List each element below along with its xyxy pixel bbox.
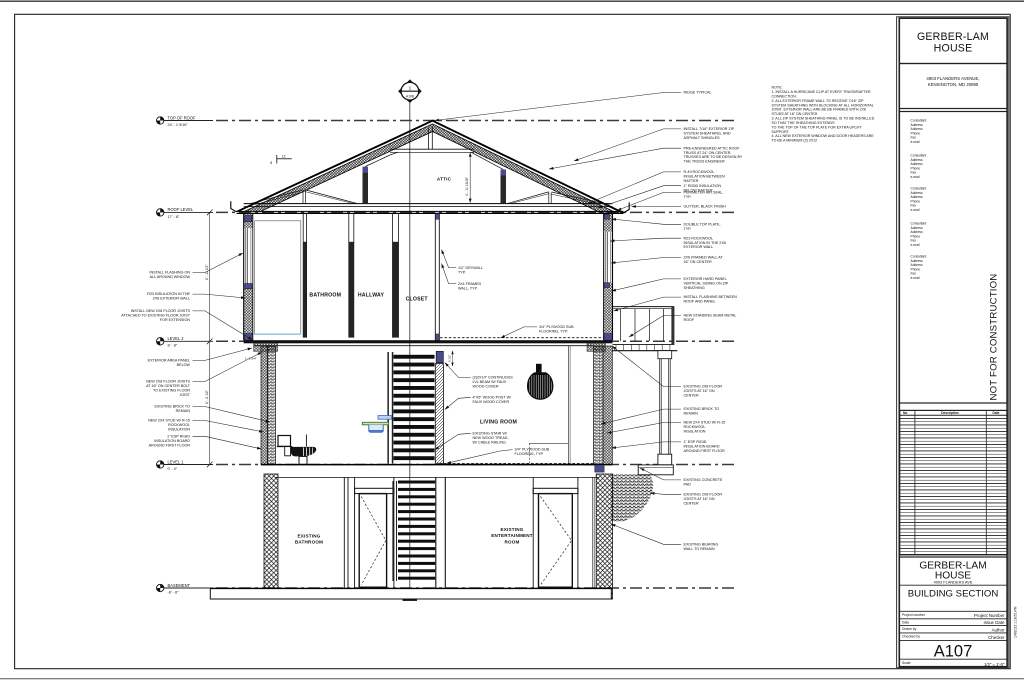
svg-text:1. INSTALL A HURRICANE CLIP AT: 1. INSTALL A HURRICANE CLIP AT EVERY TRU…	[772, 90, 871, 94]
svg-text:AT 16" ON CENTER BOLT: AT 16" ON CENTER BOLT	[146, 384, 191, 388]
svg-text:JOISTS AT 16" ON: JOISTS AT 16" ON	[684, 497, 715, 501]
svg-text:Scale: Scale	[902, 661, 911, 665]
svg-text:EXTERIOR HARD PANEL: EXTERIOR HARD PANEL	[684, 277, 727, 281]
svg-text:PERIMETER AIR SEAL,: PERIMETER AIR SEAL,	[684, 191, 724, 195]
svg-text:12: 12	[282, 155, 286, 159]
svg-text:EXISTING BRICK TO: EXISTING BRICK TO	[154, 405, 190, 409]
svg-text:A108: A108	[406, 95, 414, 99]
svg-text:ROOF LEVEL: ROOF LEVEL	[168, 207, 194, 212]
svg-text:4"X6" WOOD POST W/: 4"X6" WOOD POST W/	[473, 395, 513, 399]
svg-text:FOR EXTENSION: FOR EXTENSION	[160, 318, 190, 322]
svg-text:CENTER: CENTER	[684, 501, 699, 505]
svg-text:TYP.: TYP.	[684, 227, 692, 231]
svg-text:WALL TO REMAIN: WALL TO REMAIN	[684, 547, 715, 551]
svg-text:SO THAT THE SHEATHING EXTENDS: SO THAT THE SHEATHING EXTENDS	[772, 121, 836, 125]
svg-text:LIVING ROOM: LIVING ROOM	[480, 420, 517, 426]
svg-text:1/4/2022 1:18:51 PM: 1/4/2022 1:18:51 PM	[1014, 606, 1018, 638]
svg-text:e-mail: e-mail	[911, 208, 920, 212]
svg-text:STUDS AT 16" ON CENTER.: STUDS AT 16" ON CENTER.	[772, 112, 819, 116]
svg-text:TO EXISTING FLOOR: TO EXISTING FLOOR	[153, 389, 190, 393]
svg-text:ENTERTAINMENT: ENTERTAINMENT	[491, 533, 533, 538]
svg-text:W/ CABLE RAILING: W/ CABLE RAILING	[473, 440, 507, 444]
svg-text:Description: Description	[941, 411, 959, 415]
svg-text:AROUND FIRST FLOOR: AROUND FIRST FLOOR	[149, 443, 191, 447]
svg-text:ROOF: ROOF	[684, 318, 695, 322]
svg-text:AROUND FIRST FLOOR: AROUND FIRST FLOOR	[684, 449, 726, 453]
svg-text:ATTIC: ATTIC	[437, 177, 452, 182]
svg-text:WALL, TYP.: WALL, TYP.	[458, 286, 478, 290]
svg-text:R-49 ROCKWOOL: R-49 ROCKWOOL	[684, 170, 715, 174]
svg-text:CONNECTION.: CONNECTION.	[772, 94, 797, 98]
svg-text:TYP.: TYP.	[458, 270, 466, 274]
svg-text:CENTER: CENTER	[684, 394, 699, 398]
svg-text:Author: Author	[992, 627, 1005, 632]
svg-text:JOIST: JOIST	[180, 393, 191, 397]
svg-text:VERTICAL SIDING ON ZIP: VERTICAL SIDING ON ZIP	[684, 281, 729, 285]
svg-text:ALL AROUND WINDOW: ALL AROUND WINDOW	[150, 275, 191, 279]
svg-text:TO THE TOP OF THE TOP PLATE FO: TO THE TOP OF THE TOP PLATE FOR EXTRA UP…	[772, 125, 863, 129]
svg-text:EXISTING: EXISTING	[500, 527, 523, 532]
svg-text:KENSINGTON, MD 20895: KENSINGTON, MD 20895	[928, 82, 979, 87]
svg-text:PAD: PAD	[684, 482, 692, 486]
svg-text:ROOF AND PANEL: ROOF AND PANEL	[684, 300, 716, 304]
svg-text:JOISTS AT 16" ON: JOISTS AT 16" ON	[684, 389, 715, 393]
svg-text:NOT FOR CONSTRUCTION: NOT FOR CONSTRUCTION	[989, 274, 1000, 401]
svg-text:Checked by: Checked by	[902, 635, 920, 639]
svg-text:1/2" DRYWALL: 1/2" DRYWALL	[458, 266, 483, 270]
svg-text:Project Number: Project Number	[974, 613, 1005, 618]
svg-text:EXISTING 2X8 FLOOR: EXISTING 2X8 FLOOR	[684, 492, 723, 496]
svg-text:2X6 FRAMED WALL AT: 2X6 FRAMED WALL AT	[684, 256, 724, 260]
svg-text:INSULATION BOARD: INSULATION BOARD	[154, 439, 190, 443]
svg-text:INSULATION BETWEEN: INSULATION BETWEEN	[684, 174, 725, 178]
svg-text:INSTALL NEW 2X8 FLOOR JOISTS: INSTALL NEW 2X8 FLOOR JOISTS	[131, 309, 191, 313]
svg-text:HOUSE: HOUSE	[934, 43, 973, 55]
svg-text:REMAIN: REMAIN	[176, 409, 191, 413]
svg-text:EXISTING 2X8 FLOOR: EXISTING 2X8 FLOOR	[684, 385, 723, 389]
svg-text:BATHROOM: BATHROOM	[295, 540, 323, 545]
svg-text:Checker: Checker	[988, 635, 1005, 640]
svg-text:No.: No.	[903, 411, 908, 415]
svg-text:HALLWAY: HALLWAY	[358, 293, 385, 299]
svg-text:TRUSSES ARE TO BE DESIGN BY: TRUSSES ARE TO BE DESIGN BY	[684, 155, 743, 159]
svg-text:EXTERIOR WALL: EXTERIOR WALL	[684, 245, 714, 249]
svg-text:THE TRUSS ENGINEER: THE TRUSS ENGINEER	[684, 160, 725, 164]
svg-text:2X6 EXTERIOR WALL: 2X6 EXTERIOR WALL	[153, 297, 190, 301]
svg-text:3. ALL ZIP SYSTEM SHEATHING PA: 3. ALL ZIP SYSTEM SHEATHING PANEL IS TO …	[772, 117, 875, 121]
svg-text:TRUSS AT 24" ON CENTER.: TRUSS AT 24" ON CENTER.	[684, 151, 732, 155]
svg-text:INSULATION: INSULATION	[684, 430, 706, 434]
svg-text:ROCKWOOL: ROCKWOOL	[684, 425, 706, 429]
svg-text:INSULATION BOARD: INSULATION BOARD	[684, 444, 720, 448]
svg-text:FAUX WOOD COVER: FAUX WOOD COVER	[473, 400, 510, 404]
svg-text:R23 ROCKWOOL: R23 ROCKWOOL	[684, 236, 714, 240]
svg-text:R23 INSULATION IN THE: R23 INSULATION IN THE	[147, 292, 190, 296]
svg-text:INSTALL FLASHING BETWEEN: INSTALL FLASHING BETWEEN	[684, 295, 738, 299]
svg-text:RAFTER: RAFTER	[684, 179, 699, 183]
svg-text:RIDGE TYPICAL: RIDGE TYPICAL	[684, 91, 712, 95]
svg-text:1" ESP RIGID: 1" ESP RIGID	[167, 434, 190, 438]
svg-text:INSTALL 7/16" EXTERIOR ZIP: INSTALL 7/16" EXTERIOR ZIP	[684, 127, 735, 131]
svg-text:16" ON CENTER: 16" ON CENTER	[684, 260, 712, 264]
svg-text:DOUBLE TOP PLATE,: DOUBLE TOP PLATE,	[684, 222, 721, 226]
svg-text:8' - 8 1/2": 8' - 8 1/2"	[205, 389, 209, 404]
svg-text:GUTTER, BLACK FINISH: GUTTER, BLACK FINISH	[684, 205, 727, 209]
svg-text:ROCKWOOL: ROCKWOOL	[168, 423, 190, 427]
svg-text:1/2" = 1'-0": 1/2" = 1'-0"	[984, 662, 1005, 667]
svg-text:3/4" PLYWOOD SUB: 3/4" PLYWOOD SUB	[539, 325, 574, 329]
svg-text:1" RIGID INSULATION: 1" RIGID INSULATION	[684, 184, 722, 188]
svg-text:2. ALL EXTERIOR FRAME WALL TO: 2. ALL EXTERIOR FRAME WALL TO RECEIVE 7/…	[772, 99, 865, 103]
svg-text:EXISTING BRICK TO: EXISTING BRICK TO	[684, 407, 720, 411]
svg-text:FLOORING, TYP.: FLOORING, TYP.	[539, 329, 568, 333]
svg-text:INSULATION: INSULATION	[168, 428, 190, 432]
svg-text:NEW 2X8 FLOOR JOISTS: NEW 2X8 FLOOR JOISTS	[146, 380, 190, 384]
svg-text:Issue Date: Issue Date	[984, 620, 1006, 625]
svg-text:TO BE A MINIMUM (2) 2X12: TO BE A MINIMUM (2) 2X12	[772, 139, 818, 143]
svg-text:EXISTING CONCRETE: EXISTING CONCRETE	[684, 478, 723, 482]
svg-text:ATTACHED TO EXISTING FLOOR JOI: ATTACHED TO EXISTING FLOOR JOIST	[121, 313, 191, 317]
svg-text:INSULATION IN THE 2X6: INSULATION IN THE 2X6	[684, 241, 726, 245]
svg-text:WOOD COVER: WOOD COVER	[473, 385, 499, 389]
svg-text:CLOSET: CLOSET	[406, 297, 429, 303]
svg-text:EXTERIOR AREA PANEL: EXTERIOR AREA PANEL	[148, 359, 190, 363]
svg-text:SUPPORT.: SUPPORT.	[772, 130, 790, 134]
svg-text:LEVEL 1: LEVEL 1	[168, 459, 185, 464]
svg-text:e-mail: e-mail	[911, 243, 920, 247]
svg-text:SYSTEM SHEATHING, AND: SYSTEM SHEATHING, AND	[684, 131, 731, 135]
svg-text:4903 FLANDERS AVENUE,: 4903 FLANDERS AVENUE,	[926, 76, 979, 81]
svg-text:JOINT. EXTERIOR WALL ARE BE BE: JOINT. EXTERIOR WALL ARE BE BE FRAMED WI…	[772, 108, 866, 112]
svg-text:ROOM: ROOM	[504, 539, 519, 544]
svg-text:BUILDING SECTION: BUILDING SECTION	[908, 589, 999, 600]
svg-text:BASEMENT: BASEMENT	[168, 583, 191, 588]
svg-text:9 1/2": 9 1/2"	[448, 355, 452, 362]
svg-text:8: 8	[270, 161, 272, 165]
svg-text:Date: Date	[993, 411, 1000, 415]
svg-text:1: 1	[409, 85, 412, 90]
svg-text:4903 FLANDERS AVE: 4903 FLANDERS AVE	[934, 579, 973, 584]
svg-text:8' - 8": 8' - 8"	[168, 344, 178, 348]
svg-text:Drawn by: Drawn by	[902, 627, 917, 631]
svg-text:FLOORING, TYP.: FLOORING, TYP.	[515, 452, 544, 456]
svg-text:PRE-ENGINEERED ATTIC ROOF: PRE-ENGINEERED ATTIC ROOF	[684, 146, 741, 150]
svg-text:TYP.: TYP.	[684, 195, 692, 199]
svg-text:3/4" PLYWOOD SUB: 3/4" PLYWOOD SUB	[515, 448, 550, 452]
svg-text:SHEATHING: SHEATHING	[684, 286, 705, 290]
svg-text:-8' - 8": -8' - 8"	[168, 590, 180, 594]
svg-text:4' - 11 15/16": 4' - 11 15/16"	[465, 176, 469, 196]
svg-text:NOTE:: NOTE:	[772, 86, 783, 90]
svg-text:LEVEL 2: LEVEL 2	[168, 336, 185, 341]
svg-text:REMAIN: REMAIN	[684, 412, 699, 416]
svg-text:GERBER-LAM: GERBER-LAM	[917, 31, 989, 43]
svg-text:e-mail: e-mail	[911, 276, 920, 280]
svg-text:e-mail: e-mail	[911, 140, 920, 144]
svg-text:NEW STANDING SEAM METAL: NEW STANDING SEAM METAL	[684, 314, 737, 318]
svg-text:TOP OF ROOF: TOP OF ROOF	[168, 115, 197, 120]
svg-text:EXISTING: EXISTING	[297, 533, 320, 538]
svg-text:SYSTEM SHEATHING WITH BLOCKING: SYSTEM SHEATHING WITH BLOCKING AT ALL HO…	[772, 103, 874, 107]
svg-text:24' - 1 9/16": 24' - 1 9/16"	[168, 123, 189, 127]
svg-text:BELOW: BELOW	[177, 363, 191, 367]
svg-text:NEW 2X4 STUD W/ R-15: NEW 2X4 STUD W/ R-15	[684, 421, 726, 425]
svg-text:NEW WOOD TREAD,: NEW WOOD TREAD,	[473, 436, 509, 440]
svg-text:1'- 0 3/4": 1'- 0 3/4"	[245, 356, 257, 360]
svg-text:ASPHALT SHINGLES: ASPHALT SHINGLES	[684, 136, 721, 140]
svg-text:4. ALL NEW EXTERIOR WINDOW AND: 4. ALL NEW EXTERIOR WINDOW AND DOOR HEAD…	[772, 134, 875, 138]
svg-text:INSTALL FLASHING ON: INSTALL FLASHING ON	[149, 271, 190, 275]
svg-text:LVL BEAM W/ FAUX: LVL BEAM W/ FAUX	[473, 380, 507, 384]
svg-text:Project number: Project number	[902, 613, 926, 617]
svg-text:BATHROOM: BATHROOM	[309, 293, 341, 299]
svg-text:A107: A107	[934, 643, 973, 661]
svg-text:0' - 0": 0' - 0"	[168, 467, 178, 471]
svg-text:Date: Date	[902, 620, 909, 624]
svg-text:EXISTING BEARING: EXISTING BEARING	[684, 542, 719, 546]
svg-text:e-mail: e-mail	[911, 175, 920, 179]
svg-text:17' - 8": 17' - 8"	[168, 215, 180, 219]
svg-text:1" ESP RIGID: 1" ESP RIGID	[684, 440, 707, 444]
svg-text:2X4 FRAMED: 2X4 FRAMED	[458, 282, 481, 286]
svg-text:EXISTING STAIR W/: EXISTING STAIR W/	[473, 431, 508, 435]
svg-text:NEW 2X4 STUD W/ R-15: NEW 2X4 STUD W/ R-15	[148, 419, 190, 423]
svg-text:(2)2X10" CONTINUOUS: (2)2X10" CONTINUOUS	[473, 376, 514, 380]
